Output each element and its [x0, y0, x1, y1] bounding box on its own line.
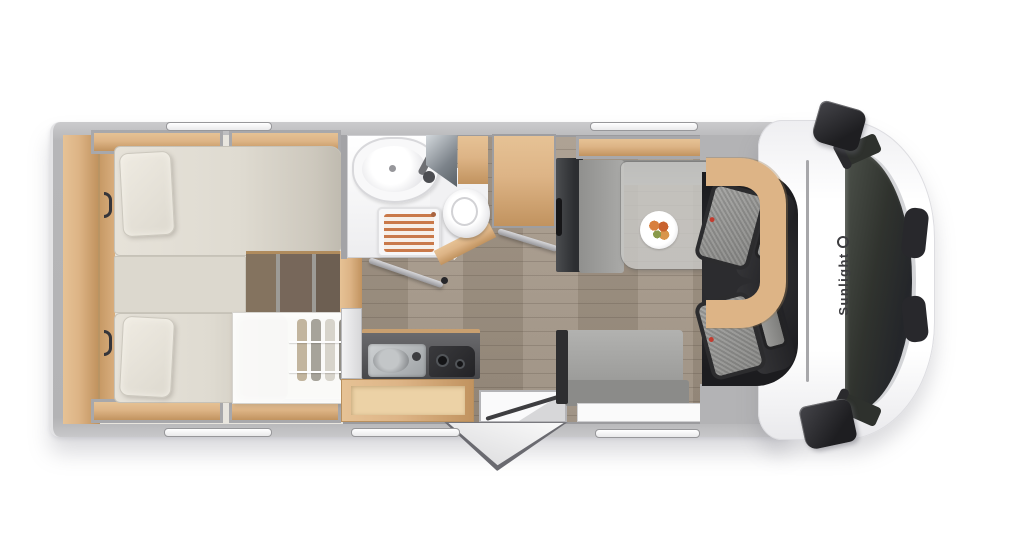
hob-burner: [436, 354, 449, 367]
panel-handle: [556, 198, 562, 236]
bed-center-filler-cushion: [114, 256, 246, 313]
kitchen-drawer-front: [351, 386, 465, 415]
window-bottom-dinette: [595, 429, 700, 438]
toilet-side-cabinet: [458, 136, 488, 184]
bathroom-faucet-head: [423, 171, 435, 183]
bathroom-door-handle: [441, 277, 448, 284]
shower-tray: [377, 207, 441, 257]
window-bottom-kitchen: [351, 428, 460, 437]
rear-garage-shelf: [63, 135, 100, 424]
windshield: [845, 149, 912, 413]
kitchen-lower-cabinet: [341, 379, 474, 422]
wing-mirror-bottom: [798, 397, 858, 451]
dinette-bench-left: [579, 160, 624, 273]
bed-headboard-panel: [100, 139, 115, 420]
window-top-dinette: [590, 122, 698, 131]
plate-of-food: [640, 211, 678, 249]
kitchen-hob: [429, 346, 475, 377]
bed-grab-handle: [104, 192, 112, 218]
dinette-bench-front: [565, 330, 683, 383]
pillow: [119, 151, 175, 238]
hob-burner: [455, 359, 465, 369]
motorhome-floorplan-top-view: Sunlight: [0, 0, 1024, 559]
fridge-cabinet-top: [492, 134, 556, 228]
food: [647, 218, 671, 242]
window-top-rear: [166, 122, 272, 131]
sink-drain: [389, 165, 396, 172]
brand-label: Sunlight: [836, 252, 851, 315]
brand-lettering: Sunlight: [835, 221, 851, 331]
dinette-sideboard: [577, 403, 715, 422]
kitchen-tall-cabinet: [341, 308, 362, 379]
sunlight-ring-logo-icon: [837, 236, 849, 248]
cab-surround-wood-trim: [706, 158, 786, 328]
wardrobe-top-view: [232, 312, 358, 404]
wardrobe-rail: [289, 341, 349, 343]
window-bottom-rear: [164, 428, 272, 437]
bedside-cabinet: [340, 251, 362, 312]
shower-duckboard-slats: [384, 214, 434, 252]
front-grille-slot: [901, 295, 930, 343]
kitchen-sink-basin: [373, 348, 409, 373]
front-grille-slot: [900, 207, 929, 259]
shower-drain: [431, 212, 436, 217]
dinette-overhead-cabinet: [576, 136, 714, 159]
bed-grab-handle: [104, 330, 112, 356]
toilet-seat: [451, 197, 478, 226]
toilet: [443, 189, 490, 238]
pillow: [119, 316, 175, 399]
kitchen-faucet: [412, 352, 421, 361]
cab-trim-edge: [806, 160, 809, 382]
kitchen-sink-unit: [368, 344, 426, 377]
wardrobe-rail: [289, 371, 349, 373]
dinette-bench-side-panel: [556, 330, 568, 404]
